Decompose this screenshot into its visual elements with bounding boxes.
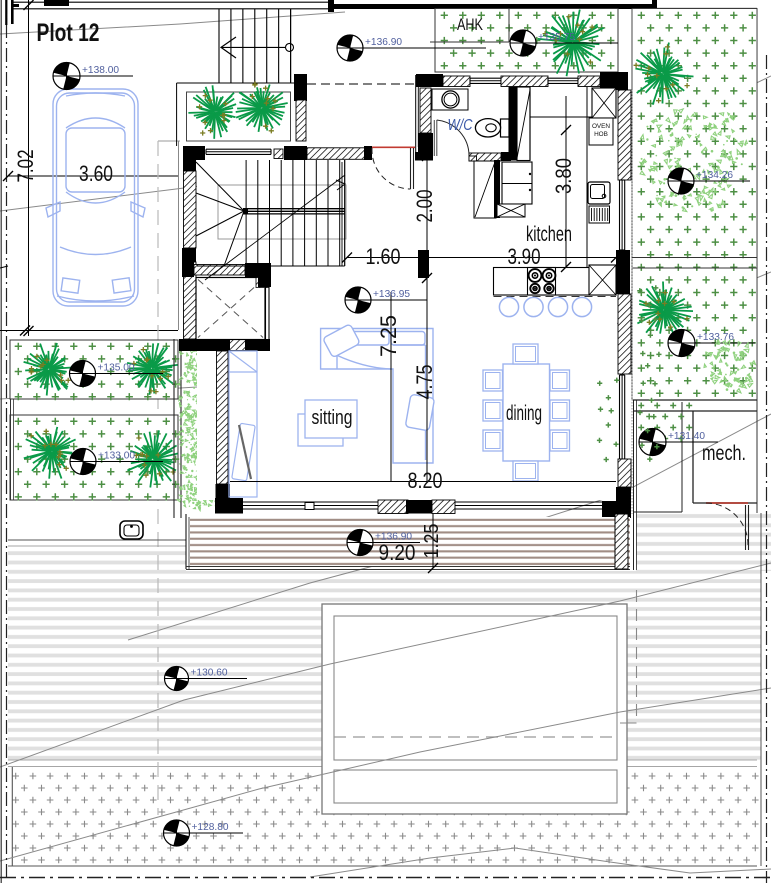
- svg-text:kitchen: kitchen: [526, 223, 572, 246]
- svg-text:7.02: 7.02: [13, 150, 38, 183]
- svg-text:8.20: 8.20: [408, 468, 443, 493]
- svg-text:+131.40: +131.40: [668, 431, 705, 442]
- svg-text:W/C: W/C: [448, 117, 473, 134]
- svg-text:1.25: 1.25: [421, 524, 443, 559]
- svg-text:+136.90: +136.90: [365, 37, 402, 48]
- svg-text:+133.00: +133.00: [98, 451, 135, 462]
- svg-text:9.20: 9.20: [379, 540, 416, 565]
- svg-text:+135.75: +135.75: [538, 32, 575, 43]
- svg-text:7.25: 7.25: [376, 315, 401, 357]
- svg-text:OVEN: OVEN: [592, 123, 610, 130]
- svg-text:1.60: 1.60: [366, 244, 401, 269]
- svg-text:dining: dining: [506, 402, 542, 425]
- svg-text:3.60: 3.60: [79, 161, 113, 186]
- svg-text:+136.95: +136.95: [373, 289, 410, 300]
- svg-text:+135.00: +135.00: [98, 363, 135, 374]
- svg-text:+134.26: +134.26: [696, 170, 733, 181]
- svg-text:3.90: 3.90: [508, 244, 541, 269]
- svg-text:+128.80: +128.80: [192, 822, 229, 833]
- svg-text:+130.60: +130.60: [191, 668, 228, 679]
- svg-text:AHK: AHK: [457, 15, 483, 34]
- svg-text:HOB: HOB: [594, 131, 608, 138]
- svg-text:+138.00: +138.00: [82, 65, 119, 76]
- svg-text:4.75: 4.75: [412, 365, 437, 400]
- svg-text:sitting: sitting: [312, 407, 353, 429]
- svg-text:3.80: 3.80: [551, 158, 576, 194]
- svg-text:mech.: mech.: [702, 442, 746, 465]
- svg-text:2.00: 2.00: [412, 190, 437, 223]
- svg-text:Plot 12: Plot 12: [37, 19, 100, 47]
